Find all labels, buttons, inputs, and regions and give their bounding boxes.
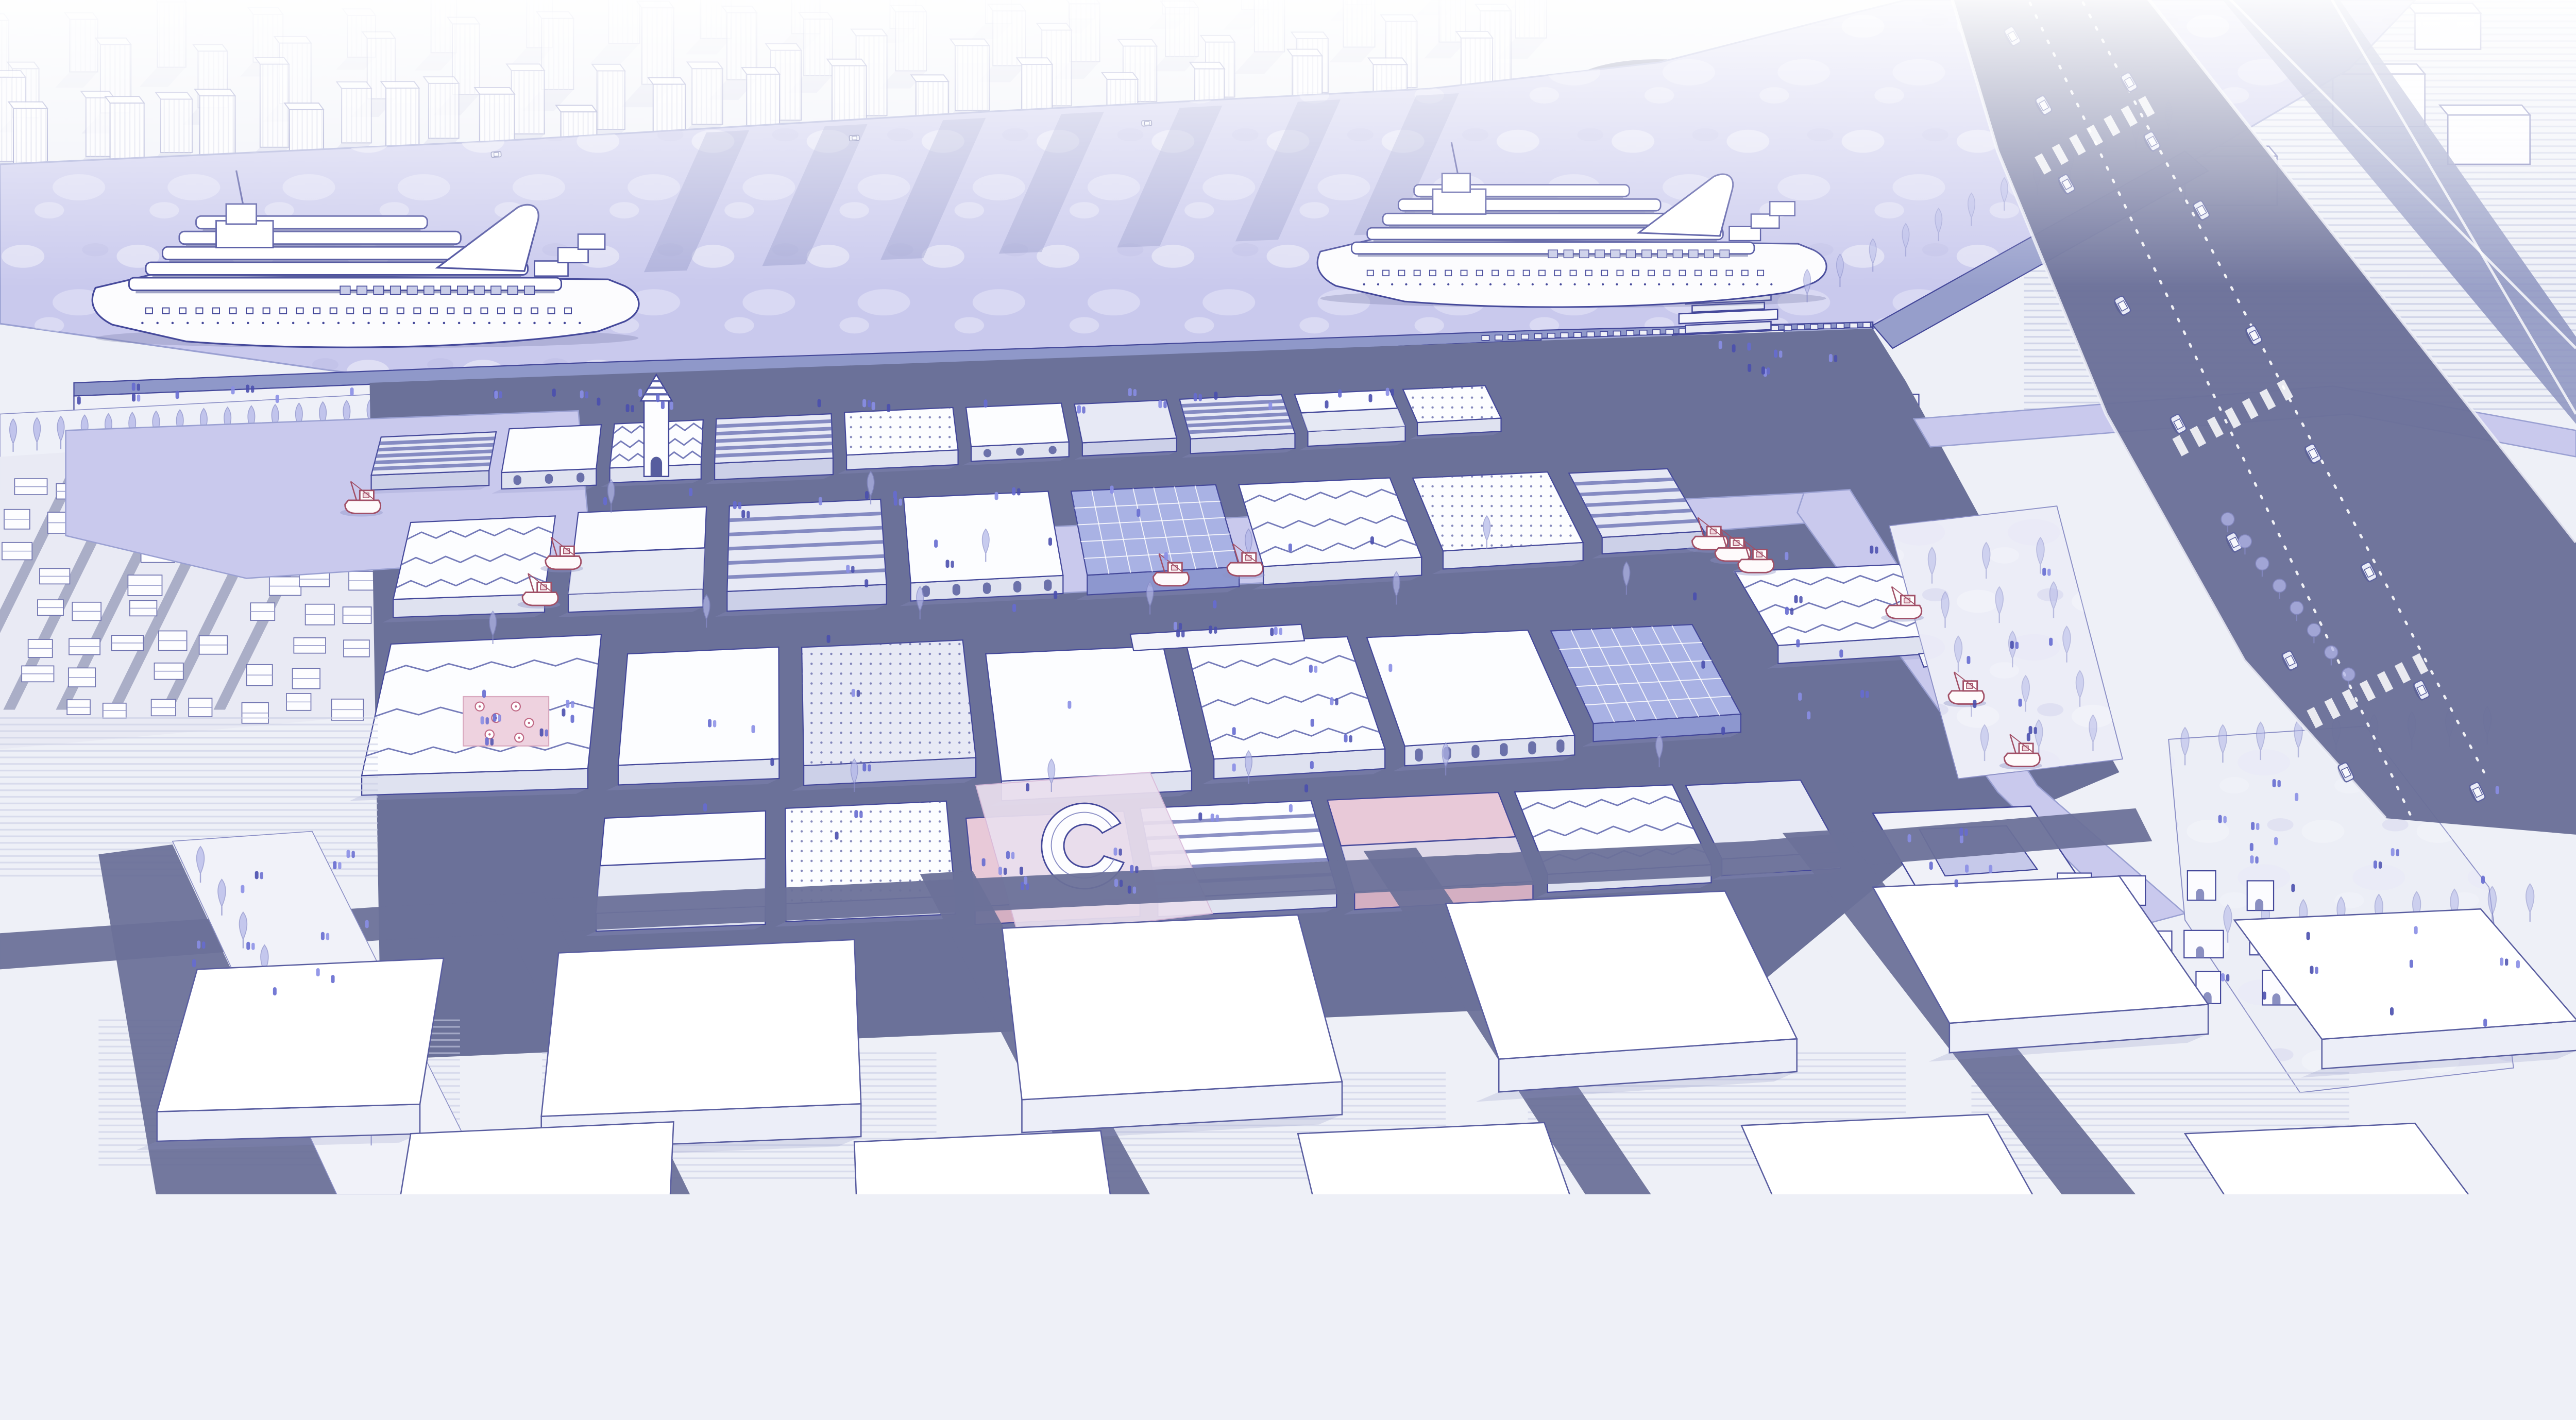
old-town-house bbox=[189, 698, 212, 717]
old-town-house bbox=[130, 601, 157, 616]
old-town-house bbox=[159, 631, 187, 650]
pedestrian bbox=[770, 758, 774, 766]
old-town-house bbox=[151, 699, 176, 716]
pedestrian bbox=[1268, 402, 1272, 410]
ship-porthole bbox=[337, 322, 340, 325]
pedestrian bbox=[1798, 692, 1802, 701]
pedestrian bbox=[365, 920, 369, 928]
pedestrian bbox=[638, 388, 642, 397]
block-roof bbox=[502, 425, 601, 472]
pedestrian bbox=[689, 488, 692, 496]
pedestrian bbox=[192, 959, 196, 968]
foreground-building bbox=[1741, 1114, 2036, 1194]
pedestrian bbox=[2410, 960, 2413, 968]
pedestrian bbox=[2027, 733, 2030, 741]
pedestrian bbox=[1955, 879, 1958, 887]
atmospheric-fog bbox=[0, 0, 2576, 288]
pedestrian bbox=[2307, 932, 2310, 940]
pedestrian bbox=[1338, 390, 1342, 398]
pedestrian bbox=[350, 387, 354, 396]
pedestrian bbox=[1270, 628, 1274, 636]
wall-merlon bbox=[1482, 335, 1489, 341]
pedestrian bbox=[995, 492, 998, 500]
ship-porthole bbox=[187, 322, 189, 325]
wall-merlon bbox=[1639, 330, 1647, 335]
boat-hull bbox=[1886, 605, 1922, 619]
pedestrian bbox=[656, 394, 659, 402]
pedestrian bbox=[872, 402, 875, 410]
city-block bbox=[792, 640, 976, 791]
pedestrian bbox=[276, 395, 279, 403]
wall-merlon bbox=[1863, 323, 1870, 328]
cafe-parasol bbox=[515, 733, 523, 742]
foreground-building bbox=[376, 1122, 674, 1194]
city-block bbox=[1074, 400, 1176, 460]
ship-porthole bbox=[548, 322, 551, 325]
puzzle-arch bbox=[2272, 993, 2280, 1005]
arcade-arch bbox=[983, 583, 991, 594]
old-town-house bbox=[293, 668, 320, 688]
ship-porthole bbox=[262, 322, 264, 325]
block-roof bbox=[618, 647, 779, 765]
ship-porthole bbox=[564, 322, 566, 325]
wall-merlon bbox=[1521, 334, 1529, 340]
city-block bbox=[1180, 395, 1295, 458]
pedestrian bbox=[1965, 865, 1969, 873]
pedestrian bbox=[2516, 960, 2520, 969]
pedestrian bbox=[1732, 344, 1736, 352]
wall-merlon bbox=[1548, 333, 1555, 339]
pedestrian bbox=[865, 491, 869, 499]
pedestrian bbox=[819, 497, 822, 505]
old-town-house bbox=[14, 479, 47, 495]
pedestrian bbox=[2263, 991, 2266, 1000]
ship-porthole bbox=[216, 322, 219, 325]
boat-hull bbox=[522, 593, 558, 606]
pedestrian bbox=[1721, 726, 1725, 735]
cafe-parasol bbox=[512, 702, 520, 711]
pedestrian bbox=[1967, 656, 1970, 664]
fog-overlay bbox=[0, 0, 2576, 288]
wall-merlon bbox=[1561, 333, 1568, 338]
ship-porthole bbox=[141, 322, 144, 325]
ship-porthole bbox=[156, 322, 159, 325]
ship-porthole bbox=[232, 322, 234, 325]
pedestrian bbox=[1304, 784, 1308, 792]
wall-merlon bbox=[1653, 330, 1660, 335]
pedestrian bbox=[670, 402, 673, 410]
old-town-house bbox=[128, 575, 162, 596]
puzzle-arch bbox=[2196, 889, 2204, 900]
pedestrian bbox=[1388, 664, 1392, 672]
pedestrian bbox=[893, 491, 897, 499]
wall-merlon bbox=[1495, 335, 1502, 340]
pedestrian bbox=[1748, 364, 1751, 372]
ship-porthole bbox=[443, 322, 446, 325]
old-town-house bbox=[28, 639, 53, 657]
arcade-arch bbox=[1044, 580, 1052, 591]
arcade-arch bbox=[1415, 749, 1422, 762]
arcade-arch bbox=[984, 449, 991, 458]
pedestrian bbox=[571, 715, 574, 723]
ship-porthole bbox=[367, 322, 370, 325]
arcade-arch bbox=[545, 474, 553, 484]
building-roof bbox=[541, 940, 861, 1117]
dotted-roof bbox=[844, 408, 958, 455]
ship-porthole bbox=[533, 322, 536, 325]
old-town-house bbox=[69, 638, 100, 654]
old-town-house bbox=[343, 607, 371, 623]
pedestrian bbox=[1289, 544, 1292, 552]
pedestrian bbox=[2496, 786, 2499, 794]
wall-merlon bbox=[1574, 332, 1581, 337]
arcade-arch bbox=[953, 584, 960, 595]
pedestrian bbox=[2390, 1007, 2394, 1016]
ship-porthole bbox=[247, 322, 249, 325]
wall-merlon bbox=[1534, 334, 1541, 339]
arcade-arch bbox=[1048, 446, 1056, 454]
old-town-house bbox=[40, 568, 70, 584]
boat-hull bbox=[2004, 753, 2040, 767]
puzzle-arch bbox=[2255, 899, 2263, 910]
old-town-house bbox=[247, 665, 273, 686]
building-roof bbox=[1002, 915, 1342, 1100]
ship-porthole bbox=[473, 322, 476, 325]
pedestrian bbox=[1325, 400, 1329, 409]
pedestrian bbox=[1973, 700, 1976, 708]
pedestrian bbox=[1213, 600, 1216, 608]
pedestrian bbox=[241, 885, 244, 893]
pedestrian bbox=[1370, 536, 1374, 545]
boat-hull bbox=[345, 500, 381, 514]
old-town-house bbox=[67, 700, 90, 715]
pedestrian bbox=[1311, 719, 1314, 727]
wall-merlon bbox=[1666, 329, 1673, 334]
old-town-house bbox=[69, 668, 95, 687]
pedestrian bbox=[1012, 604, 1016, 612]
pedestrian bbox=[1198, 813, 1202, 821]
ship-porthole bbox=[458, 322, 461, 325]
puzzle-building bbox=[2247, 881, 2274, 910]
ship-porthole bbox=[488, 322, 490, 325]
boat-hull bbox=[546, 556, 581, 569]
city-block bbox=[715, 499, 886, 617]
wall-merlon bbox=[1837, 324, 1844, 329]
pedestrian bbox=[1232, 727, 1236, 735]
arcade-arch bbox=[1556, 739, 1564, 753]
pedestrian bbox=[77, 396, 81, 404]
wall-merlon bbox=[1850, 323, 1857, 328]
masterplan-illustration-svg bbox=[0, 0, 2576, 1194]
block-roof bbox=[986, 646, 1192, 781]
arcade-arch bbox=[1528, 741, 1536, 755]
pedestrian bbox=[1026, 783, 1029, 791]
pedestrian bbox=[1369, 394, 1372, 402]
old-town-house bbox=[72, 602, 101, 620]
pedestrian bbox=[2481, 875, 2485, 884]
ship-porthole bbox=[322, 322, 325, 325]
pedestrian bbox=[818, 399, 821, 408]
ship-porthole bbox=[307, 322, 310, 325]
pedestrian bbox=[703, 803, 707, 812]
arcade-arch bbox=[1016, 448, 1024, 456]
pedestrian bbox=[2250, 843, 2253, 851]
pedestrian bbox=[2274, 837, 2278, 846]
old-town-house bbox=[344, 640, 369, 657]
wall-merlon bbox=[1587, 332, 1594, 337]
pedestrian bbox=[1232, 764, 1236, 772]
city-block bbox=[838, 408, 958, 474]
pedestrian bbox=[176, 391, 179, 399]
pedestrian bbox=[1054, 591, 1057, 599]
boat-hull bbox=[1227, 563, 1263, 576]
pedestrian bbox=[2291, 884, 2295, 892]
pedestrian bbox=[661, 401, 665, 409]
building-roof bbox=[854, 1131, 1115, 1195]
city-block bbox=[962, 403, 1069, 465]
old-town-house bbox=[22, 666, 54, 682]
foreground-building bbox=[842, 1131, 1115, 1195]
ship-porthole bbox=[503, 322, 506, 325]
pedestrian bbox=[1048, 537, 1052, 546]
old-town-house bbox=[103, 703, 126, 718]
pedestrian bbox=[562, 708, 565, 717]
pedestrian bbox=[1137, 509, 1140, 517]
pedestrian bbox=[603, 497, 607, 505]
old-town-house bbox=[250, 603, 275, 620]
ship-porthole bbox=[292, 322, 295, 325]
pedestrian bbox=[1693, 593, 1697, 601]
old-town-house bbox=[112, 635, 144, 651]
pedestrian bbox=[1214, 392, 1217, 400]
puzzle-building bbox=[2184, 931, 2223, 958]
wall-merlon bbox=[1626, 331, 1634, 336]
building-roof bbox=[392, 1122, 673, 1194]
ship-porthole bbox=[428, 322, 430, 325]
pedestrian bbox=[1289, 804, 1293, 813]
pedestrian bbox=[1067, 701, 1071, 709]
arcade-arch bbox=[514, 475, 521, 485]
pedestrian bbox=[1929, 861, 1933, 870]
pedestrian bbox=[231, 386, 235, 395]
pedestrian bbox=[984, 399, 988, 408]
wall-merlon bbox=[1600, 331, 1607, 336]
pedestrian bbox=[827, 635, 831, 643]
cafe-parasol bbox=[476, 702, 484, 711]
pedestrian bbox=[982, 858, 986, 867]
pedestrian bbox=[2414, 926, 2418, 934]
pedestrian bbox=[1719, 341, 1722, 349]
pedestrian bbox=[1310, 761, 1314, 769]
ship-porthole bbox=[579, 322, 581, 325]
pedestrian bbox=[1908, 834, 1911, 842]
masterplan-canvas bbox=[0, 0, 2576, 1194]
arcade-arch bbox=[1013, 581, 1021, 593]
pedestrian bbox=[1747, 343, 1751, 351]
pedestrian bbox=[552, 388, 556, 397]
pedestrian bbox=[1020, 867, 1023, 875]
pedestrian bbox=[316, 968, 320, 976]
pedestrian bbox=[1960, 835, 1963, 843]
church-door bbox=[651, 457, 662, 476]
ship-porthole bbox=[201, 322, 204, 325]
pedestrian bbox=[494, 391, 498, 399]
pedestrian bbox=[865, 579, 868, 587]
wall-merlon bbox=[1798, 325, 1805, 330]
pedestrian bbox=[1796, 639, 1800, 648]
city-block bbox=[1295, 390, 1405, 450]
foreground-building bbox=[1298, 1123, 1577, 1195]
arcade-arch bbox=[577, 472, 584, 482]
old-town-house bbox=[154, 663, 183, 680]
pedestrian bbox=[2483, 1019, 2487, 1027]
arcade-arch bbox=[1471, 745, 1479, 758]
pedestrian bbox=[331, 975, 335, 983]
old-town-house bbox=[286, 694, 311, 711]
pedestrian bbox=[751, 725, 755, 733]
block-roof bbox=[1239, 478, 1421, 566]
pedestrian bbox=[2295, 793, 2298, 801]
puzzle-building bbox=[2188, 871, 2216, 900]
building-roof bbox=[157, 958, 444, 1112]
old-town-house bbox=[38, 600, 63, 615]
ship-porthole bbox=[382, 322, 385, 325]
old-town-house bbox=[294, 638, 326, 653]
city-block bbox=[492, 425, 601, 494]
gable-shade bbox=[568, 548, 705, 594]
old-town-house bbox=[269, 577, 301, 596]
ship-porthole bbox=[172, 322, 174, 325]
pedestrian bbox=[597, 398, 600, 406]
old-town-house bbox=[2, 543, 32, 560]
block-roof bbox=[1071, 485, 1239, 575]
pedestrian bbox=[1807, 711, 1810, 719]
pedestrian bbox=[934, 539, 938, 548]
building-roof bbox=[1298, 1123, 1577, 1195]
pedestrian bbox=[887, 404, 890, 412]
ship-porthole bbox=[277, 322, 280, 325]
arcade-arch bbox=[1500, 743, 1507, 756]
pedestrian bbox=[1024, 876, 1027, 885]
pedestrian bbox=[1785, 552, 1788, 560]
pedestrian bbox=[2049, 638, 2053, 646]
ship-porthole bbox=[398, 322, 400, 325]
block-roof bbox=[966, 403, 1069, 446]
ship-porthole bbox=[518, 322, 521, 325]
puzzle-arch bbox=[2196, 946, 2204, 958]
building-roof bbox=[1741, 1114, 2036, 1194]
old-town-house bbox=[306, 604, 334, 625]
pedestrian bbox=[1989, 865, 1992, 873]
cafe-parasol bbox=[524, 718, 533, 727]
city-block bbox=[1186, 637, 1385, 784]
old-town-house bbox=[4, 510, 30, 529]
pedestrian bbox=[482, 689, 486, 698]
dotted-roof bbox=[802, 640, 976, 766]
foreground-building bbox=[999, 915, 1342, 1142]
city-block bbox=[362, 432, 496, 494]
pedestrian bbox=[835, 832, 839, 840]
ship-porthole bbox=[413, 322, 415, 325]
pedestrian bbox=[273, 987, 277, 995]
dotted-roof bbox=[1403, 386, 1501, 423]
boat-hull bbox=[1154, 572, 1189, 586]
city-block bbox=[705, 414, 833, 484]
pedestrian bbox=[1110, 485, 1114, 494]
wall-merlon bbox=[1810, 325, 1818, 330]
wall-merlon bbox=[1613, 331, 1620, 336]
wall-merlon bbox=[1508, 334, 1515, 340]
wall-merlon bbox=[1784, 325, 1791, 330]
pedestrian bbox=[1077, 405, 1081, 413]
city-block bbox=[1403, 386, 1501, 439]
pedestrian bbox=[2019, 699, 2022, 707]
boat-hull bbox=[1738, 560, 1774, 573]
city-block bbox=[606, 647, 779, 790]
city-block bbox=[900, 492, 1063, 606]
old-town-house bbox=[199, 636, 228, 654]
boat-hull bbox=[1948, 691, 1984, 704]
pedestrian bbox=[1839, 649, 1843, 657]
pedestrian bbox=[1164, 552, 1168, 561]
city-block bbox=[1239, 478, 1421, 589]
pedestrian bbox=[1701, 661, 1705, 669]
ship-porthole bbox=[352, 322, 355, 325]
wall-merlon bbox=[1824, 324, 1831, 329]
